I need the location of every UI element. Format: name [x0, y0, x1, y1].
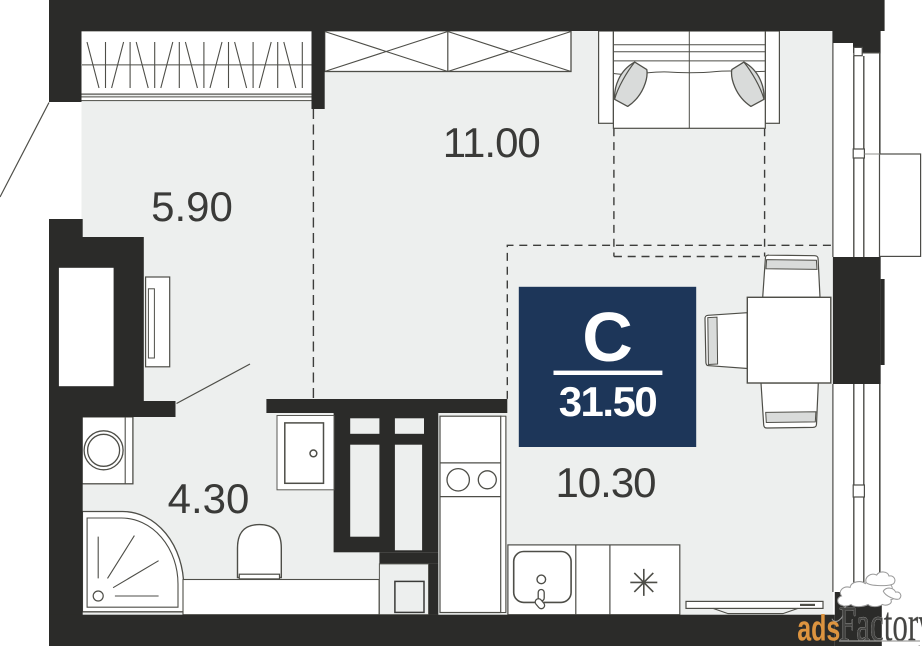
svg-text:31.50: 31.50 [559, 378, 657, 425]
svg-text:11.00: 11.00 [443, 119, 540, 166]
svg-text:10.30: 10.30 [555, 459, 655, 506]
svg-text:Factory: Factory [839, 596, 922, 646]
svg-text:С: С [582, 298, 633, 376]
svg-text:ads: ads [797, 608, 840, 646]
svg-text:5.90: 5.90 [151, 183, 233, 230]
svg-text:4.30: 4.30 [168, 475, 250, 522]
